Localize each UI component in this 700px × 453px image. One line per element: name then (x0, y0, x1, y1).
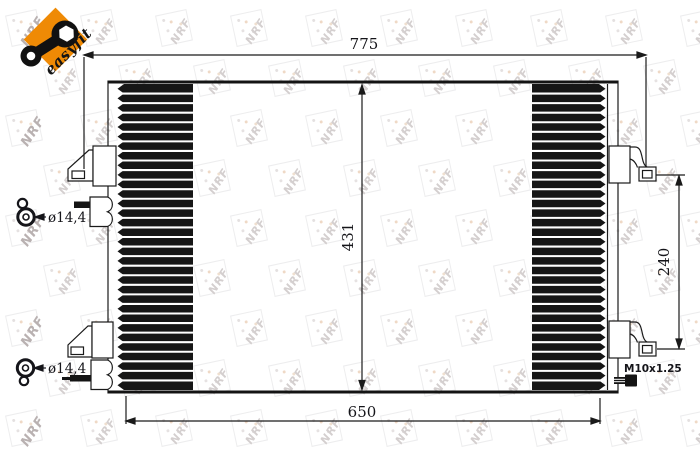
bracket-arm (630, 322, 650, 343)
arrowhead (359, 85, 365, 94)
bracket-tab-hole (643, 171, 653, 179)
bracket-arm-inner (630, 159, 638, 168)
arrowhead (676, 176, 682, 185)
port-fitting-top (18, 199, 34, 225)
bracket-plate (92, 322, 113, 358)
bracket-arm (630, 147, 650, 168)
bracket-upper-right (609, 146, 656, 183)
arrowhead (676, 339, 682, 348)
dim-core-height (359, 85, 365, 390)
arrowhead (126, 418, 135, 424)
wrench-open-end-hole (27, 52, 36, 61)
easyfit-logo: easyfit (0, 0, 112, 104)
arrowhead (34, 365, 43, 371)
fitting-thread (614, 377, 625, 384)
dim-240-label: 240 (655, 248, 673, 277)
top-plate (108, 81, 618, 84)
bracket-plate (93, 146, 116, 186)
bottom-plate (108, 391, 618, 394)
pipe-stub-tip (62, 377, 70, 380)
port-leader-bottom (34, 365, 46, 371)
bracket-tab-hole (643, 346, 653, 354)
dim-775-label: 775 (350, 35, 379, 53)
port-diameter-bottom-label: ø14,4 (48, 361, 86, 377)
connector-body (91, 360, 112, 390)
port-diameter-top-label: ø14,4 (48, 210, 86, 226)
bracket-slot (72, 171, 85, 179)
bracket-slot (71, 347, 84, 355)
port-bolt-eye (20, 377, 28, 385)
bracket-lower-left (68, 322, 113, 358)
arrowhead (359, 381, 365, 390)
port-hole (23, 365, 29, 371)
port-leader-top (35, 214, 46, 220)
port-fitting-bottom (17, 360, 33, 385)
bracket-lower-right (609, 321, 656, 358)
dim-650-label: 650 (348, 403, 377, 421)
arrowhead (35, 214, 44, 220)
dim-431-label: 431 (339, 223, 357, 252)
port-bolt-eye (18, 199, 27, 208)
port-hole (23, 214, 29, 220)
arrowhead (591, 418, 600, 424)
pipe-stub (74, 202, 91, 209)
bracket-plate (609, 146, 630, 183)
bracket-upper-left (68, 146, 116, 186)
bracket-plate (609, 321, 630, 358)
bracket-arm-inner (630, 334, 638, 343)
arrowhead (637, 52, 646, 58)
fitting-body (625, 375, 637, 387)
connector-body (90, 197, 112, 227)
thread-label: M10x1.25 (624, 363, 682, 375)
